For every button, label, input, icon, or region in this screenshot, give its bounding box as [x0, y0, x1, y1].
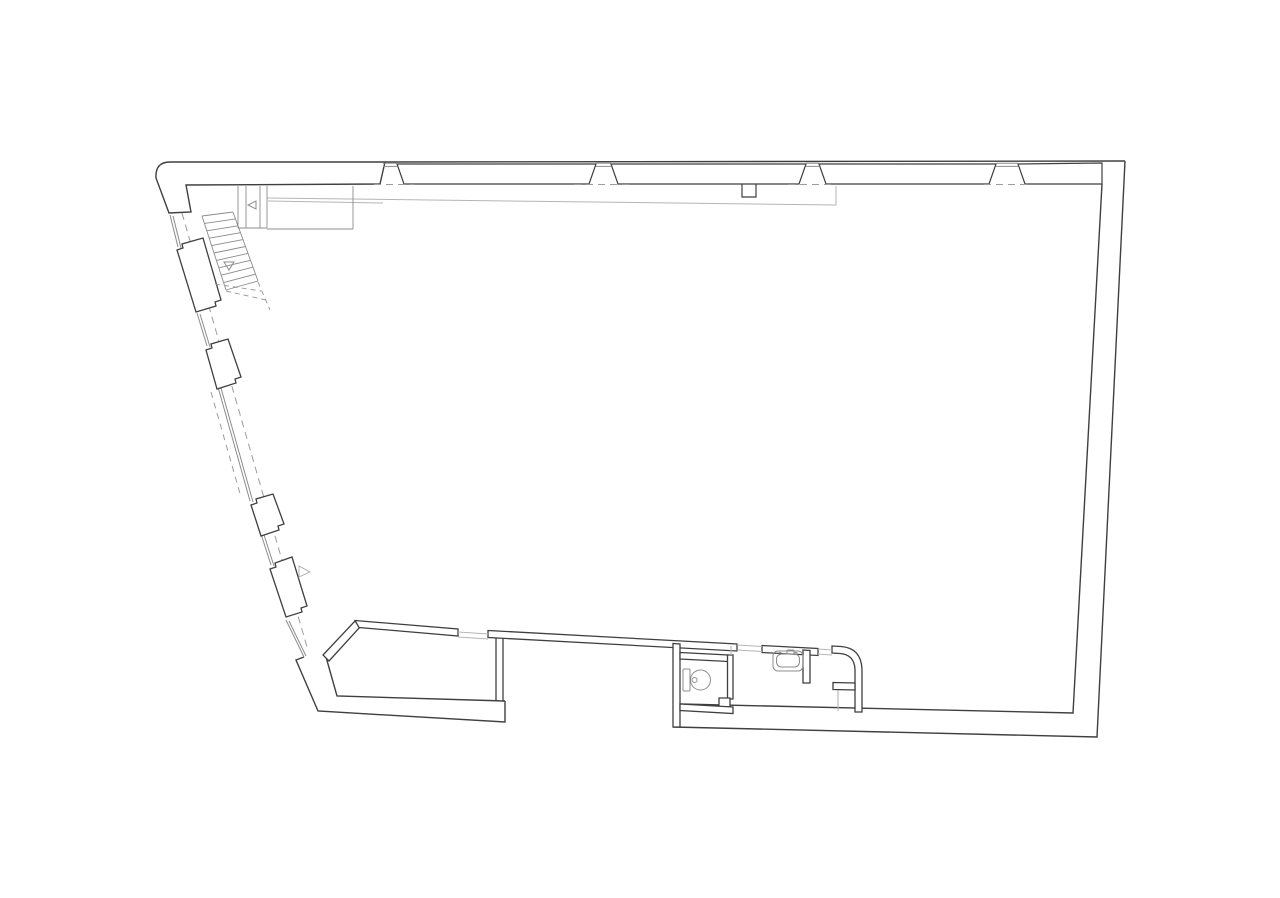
- window-bay-2: [611, 164, 806, 184]
- partition-wc-left: [673, 644, 680, 728]
- partition-wc-right: [728, 655, 734, 699]
- floor-plan-drawing: [0, 0, 1280, 898]
- window-bay-3: [819, 164, 996, 184]
- floor-plan-page: [0, 0, 1280, 898]
- partition-niche-stub: [833, 683, 855, 691]
- window-bay-4: [1018, 163, 1102, 184]
- window-bay-1: [397, 164, 596, 184]
- partition-sink-stub: [803, 650, 810, 683]
- partition-room-right: [496, 634, 503, 701]
